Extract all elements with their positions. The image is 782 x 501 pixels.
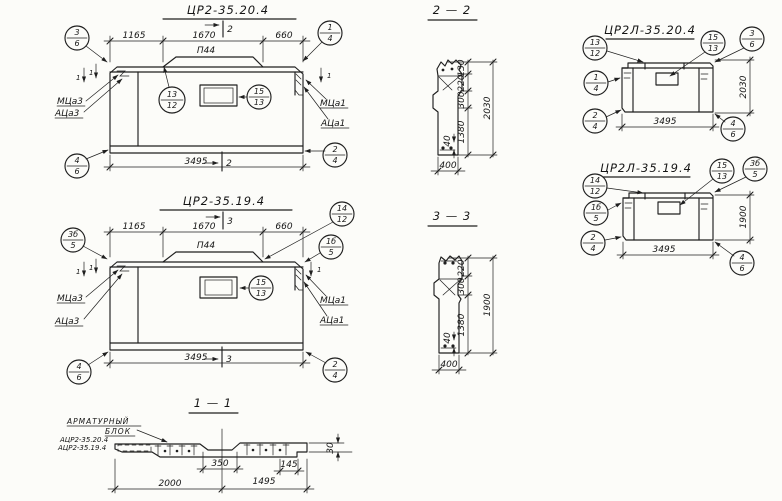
svg-text:3б: 3б: [750, 159, 760, 168]
sec22-dim-220: 220: [457, 74, 467, 91]
badge-15-13-v2: 15 13: [240, 276, 273, 300]
label-mca3: МЦа3: [57, 75, 118, 107]
view4-dim-3495: 3495: [653, 245, 676, 255]
badge-3-6-v3: 3 6: [715, 27, 764, 62]
sec33-dim-40: 40: [443, 332, 453, 344]
svg-text:МЦа1: МЦа1: [320, 296, 346, 306]
svg-text:13: 13: [590, 38, 600, 47]
sec22-dim-2030: 2030: [483, 96, 493, 119]
svg-text:МЦа3: МЦа3: [57, 97, 83, 107]
sec33-title: 3 — 3: [433, 209, 471, 223]
view1-cut-top: 2: [227, 25, 233, 35]
drawing-sheet: ЦР2-35.20.4 2 1165 1670 660 П44: [0, 0, 782, 501]
badge-2-4: 2 4: [305, 143, 347, 167]
svg-text:1: 1: [89, 69, 93, 77]
svg-text:12: 12: [590, 49, 600, 58]
sec11-dim-1495: 1495: [253, 477, 276, 487]
svg-text:2: 2: [332, 145, 337, 154]
svg-text:4: 4: [730, 119, 735, 128]
svg-text:3: 3: [74, 28, 79, 37]
sec22-dim-1380: 1380: [457, 120, 467, 143]
view2-ledge-label: П44: [197, 241, 215, 251]
sec33-dim-1380: 1380: [457, 313, 467, 336]
sec11-dim-2000: 2000: [159, 479, 182, 489]
badge-15-13: 15 13: [239, 85, 271, 109]
sec11-dim-30: 30: [326, 442, 336, 454]
badge-2-4-v3: 2 4: [583, 109, 621, 133]
rebar-block-label-2: БЛОК: [105, 427, 131, 436]
svg-text:6: 6: [739, 264, 744, 273]
svg-text:13: 13: [717, 172, 727, 181]
view2-cut-top: 3: [227, 217, 233, 227]
sec33-dim-220: 220: [457, 259, 467, 276]
svg-text:13: 13: [708, 44, 718, 53]
svg-text:МЦа3: МЦа3: [57, 294, 83, 304]
svg-text:13: 13: [167, 90, 177, 99]
view2-dim-1670: 1670: [193, 222, 216, 232]
svg-text:13: 13: [256, 289, 266, 298]
section-3-3: 3 — 3 220 300 1380 40 1900: [428, 209, 497, 374]
svg-text:АЦа1: АЦа1: [320, 119, 345, 129]
svg-text:4: 4: [76, 362, 81, 371]
section-1-1: 1 — 1 АРМАТУРНЫЙ БЛОК АЦР2-35.20.4 АЦР2-…: [57, 396, 352, 493]
svg-text:5: 5: [70, 241, 75, 250]
sec33-dim-300: 300: [457, 277, 467, 294]
view3-title: ЦР2Л-35.20.4: [604, 23, 696, 37]
sec22-dim-40: 40: [443, 135, 453, 147]
badge-2-4-v4: 2 4: [581, 231, 621, 255]
svg-text:АЦа3: АЦа3: [54, 317, 80, 327]
svg-text:4: 4: [593, 84, 598, 93]
view1-title: ЦР2-35.20.4: [187, 3, 269, 17]
svg-text:2: 2: [332, 360, 337, 369]
badge-14-12-v4: 14 12: [583, 174, 643, 198]
badge-13-12-v3: 13 12: [583, 36, 643, 62]
badge-1b-5-v4: 1б 5: [584, 201, 621, 225]
svg-text:4: 4: [327, 34, 332, 43]
sec11-dim-350: 350: [211, 459, 228, 469]
svg-text:2: 2: [592, 111, 597, 120]
svg-text:2: 2: [590, 233, 595, 242]
svg-text:14: 14: [337, 204, 347, 213]
svg-text:6: 6: [74, 167, 79, 176]
sec33-dim-400: 400: [440, 360, 457, 370]
svg-text:1б: 1б: [591, 203, 601, 212]
sec11-title: 1 — 1: [194, 396, 232, 410]
rebar-mark-2: АЦР2-35.19.4: [57, 444, 106, 452]
badge-2-4-v2: 2 4: [306, 352, 347, 382]
view-cr2-35-20-4: ЦР2-35.20.4 2 1165 1670 660 П44: [54, 3, 349, 178]
svg-text:МЦа1: МЦа1: [320, 99, 346, 109]
rebar-mark-1: АЦР2-35.20.4: [59, 436, 108, 444]
svg-text:4: 4: [74, 156, 79, 165]
svg-text:4: 4: [332, 156, 337, 165]
sec22-dim-300: 300: [457, 91, 467, 108]
badge-4-6: 4 6: [65, 150, 108, 178]
view1-dim-3495: 3495: [185, 157, 208, 167]
svg-text:14: 14: [590, 176, 600, 185]
view1-dim-1670: 1670: [193, 31, 216, 41]
svg-text:6: 6: [730, 130, 735, 139]
view2-title: ЦР2-35.19.4: [183, 194, 265, 208]
view2-dim-3495: 3495: [185, 353, 208, 363]
section-2-2: 2 — 2 130 220 300 1380 40 2030: [428, 3, 497, 175]
svg-text:4: 4: [590, 244, 595, 253]
view2-cut-bottom: 3: [226, 355, 232, 365]
svg-text:6: 6: [76, 373, 81, 382]
view-cr2l-35-19-4: ЦР2Л-35.19.4 14 12 15 13: [581, 157, 767, 275]
view-cr2-35-19-4: ЦР2-35.19.4 3 1165 1670 660 П44: [54, 194, 354, 384]
svg-text:1: 1: [76, 74, 80, 82]
sec22-dim-400: 400: [439, 161, 456, 171]
svg-text:15: 15: [256, 278, 266, 287]
svg-text:12: 12: [337, 215, 347, 224]
badge-4-6-v3: 4 6: [715, 114, 745, 141]
svg-text:4: 4: [592, 122, 597, 131]
drawing-canvas: ЦР2-35.20.4 2 1165 1670 660 П44: [0, 0, 782, 501]
svg-text:6: 6: [749, 40, 754, 49]
view4-dim-1900: 1900: [739, 205, 749, 228]
svg-text:1: 1: [76, 268, 80, 276]
view1-ledge-label: П44: [197, 46, 215, 56]
svg-text:1б: 1б: [326, 237, 336, 246]
svg-text:12: 12: [590, 187, 600, 196]
badge-13-12: 13 12: [159, 67, 185, 113]
badge-3b-5: 3б 5: [61, 228, 107, 259]
svg-text:15: 15: [708, 33, 718, 42]
svg-text:3б: 3б: [68, 230, 78, 239]
svg-text:5: 5: [593, 214, 598, 223]
svg-text:АЦа1: АЦа1: [319, 316, 344, 326]
badge-3-6: 3 6: [65, 26, 107, 62]
view1-cut-bottom: 2: [226, 159, 232, 169]
svg-text:1: 1: [89, 264, 93, 272]
svg-text:4: 4: [332, 371, 337, 380]
badge-4-6-v2: 4 6: [67, 352, 108, 384]
svg-text:4: 4: [739, 253, 744, 262]
badge-1b-5: 1б 5: [305, 235, 343, 262]
sec22-title: 2 — 2: [433, 3, 471, 17]
view1-dim-1165: 1165: [123, 31, 146, 41]
svg-text:5: 5: [328, 248, 333, 257]
svg-text:АЦа3: АЦа3: [54, 109, 80, 119]
view3-dim-3495: 3495: [654, 117, 677, 127]
sec11-dim-145: 145: [280, 460, 297, 470]
view2-dim-1165: 1165: [123, 222, 146, 232]
svg-text:12: 12: [167, 101, 177, 110]
svg-text:15: 15: [254, 87, 264, 96]
sec22-dim-130: 130: [457, 59, 467, 76]
label-mca1: МЦа1: [306, 80, 348, 109]
svg-text:1: 1: [317, 266, 321, 274]
svg-text:1: 1: [327, 23, 332, 32]
view3-dim-2030: 2030: [739, 75, 749, 98]
svg-text:1: 1: [327, 72, 331, 80]
label-mca3-v2: МЦа3: [57, 270, 118, 304]
svg-text:13: 13: [254, 98, 264, 107]
label-mca1-v2: МЦа1: [306, 275, 348, 306]
view-cr2l-35-20-4: ЦР2Л-35.20.4 13 12 15 13: [583, 23, 764, 141]
view1-dim-660: 660: [275, 31, 292, 41]
badge-1-4-v3: 1 4: [584, 71, 620, 95]
svg-text:5: 5: [752, 170, 757, 179]
badge-4-6-v4: 4 6: [715, 242, 754, 275]
svg-text:1: 1: [593, 73, 598, 82]
svg-text:3: 3: [749, 29, 754, 38]
svg-text:15: 15: [717, 161, 727, 170]
badge-15-13-v3: 15 13: [670, 31, 725, 76]
rebar-block-label-1: АРМАТУРНЫЙ: [66, 417, 129, 426]
view2-dim-660: 660: [275, 222, 292, 232]
sec33-dim-1900: 1900: [483, 293, 493, 316]
view4-title: ЦР2Л-35.19.4: [600, 161, 692, 175]
svg-text:6: 6: [74, 39, 79, 48]
